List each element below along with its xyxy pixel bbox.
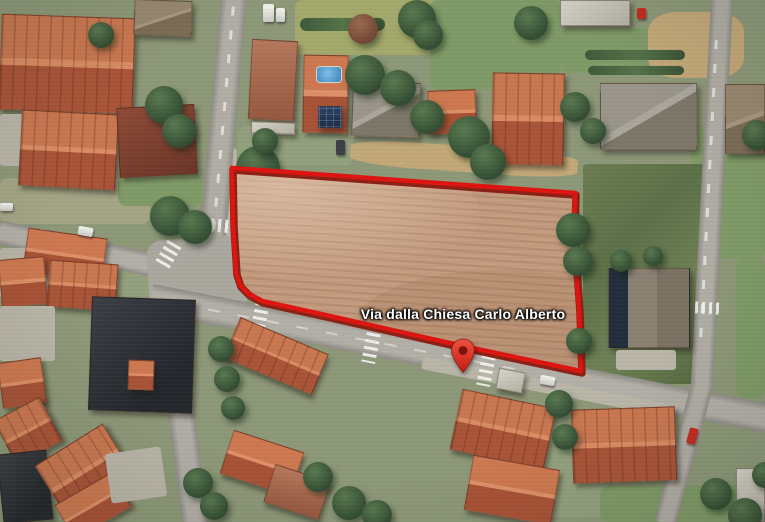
tree [563, 246, 593, 276]
pin-body [452, 339, 475, 373]
satellite-map[interactable]: Via dalla Chiesa Carlo Alberto [0, 0, 765, 522]
location-pin-icon[interactable] [450, 338, 476, 374]
pin-hole [459, 346, 468, 355]
road-label: Via dalla Chiesa Carlo Alberto [361, 306, 565, 322]
parcel-overlay [0, 0, 765, 522]
tree [556, 213, 590, 247]
tree [566, 328, 592, 354]
